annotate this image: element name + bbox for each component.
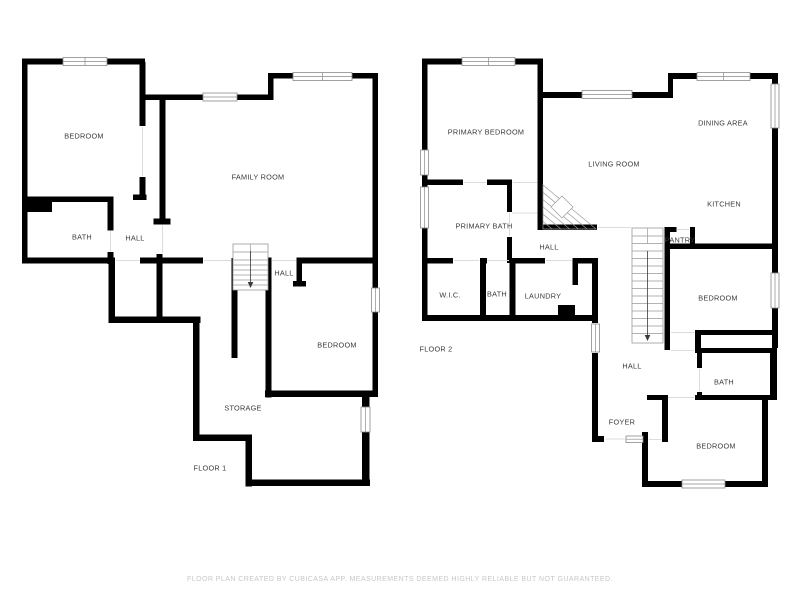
- wall-segment: [422, 180, 463, 186]
- wall-segment: [140, 258, 203, 264]
- room-label-family-room: FAMILY ROOM: [232, 173, 285, 182]
- window: [771, 273, 779, 308]
- wall-segment: [246, 435, 253, 487]
- wall-segment: [109, 258, 116, 323]
- room-label-dining-area: DINING AREA: [698, 119, 748, 128]
- wall-segment: [193, 435, 252, 442]
- wall-segment: [762, 400, 768, 487]
- window: [293, 73, 352, 81]
- wall-segment: [268, 73, 293, 79]
- window: [361, 407, 370, 432]
- wall-segment: [297, 258, 379, 264]
- room-label-hall-upper: HALL: [539, 243, 558, 252]
- room-label-bath-small: BATH: [487, 290, 507, 299]
- footer-disclaimer: FLOOR PLAN CREATED BY CUBICASA APP. MEAS…: [187, 576, 613, 583]
- wall-segment: [592, 436, 604, 442]
- room-label-living-room: LIVING ROOM: [588, 160, 639, 169]
- wall-segment: [133, 195, 147, 201]
- floor2-room-labels: PRIMARY BEDROOM LIVING ROOM DINING AREA …: [420, 119, 748, 451]
- wall-segment: [695, 395, 775, 400]
- room-label-kitchen: KITCHEN: [707, 200, 741, 209]
- room-label-storage: STORAGE: [224, 404, 261, 413]
- wall-segment: [592, 353, 598, 440]
- room-label-primary-bedroom: PRIMARY BEDROOM: [448, 128, 524, 137]
- wall-segment: [140, 62, 146, 126]
- wall-segment: [108, 197, 114, 231]
- window: [421, 150, 429, 175]
- wall-segment: [770, 348, 777, 400]
- floor1-room-labels: BEDROOM FAMILY ROOM BATH HALL HALL BEDRO…: [64, 132, 356, 473]
- fireplace-fixture-block: [22, 197, 52, 212]
- wall-segment: [697, 353, 702, 368]
- room-label-hall-c: HALL: [274, 269, 293, 278]
- wall-segment: [297, 263, 303, 284]
- room-label-pantry: PANTRY: [665, 236, 695, 245]
- room-label-bedroom-nw: BEDROOM: [64, 132, 103, 141]
- room-label-foyer: FOYER: [609, 418, 635, 427]
- floor1-plan: BEDROOM FAMILY ROOM BATH HALL HALL BEDRO…: [22, 58, 380, 487]
- wall-segment: [592, 258, 598, 323]
- floor-plan-canvas: BEDROOM FAMILY ROOM BATH HALL HALL BEDRO…: [0, 0, 800, 600]
- wall-segment: [265, 391, 378, 398]
- room-label-hall-w: HALL: [125, 234, 144, 243]
- wall-segment: [507, 183, 512, 212]
- floor1-walls: [22, 59, 378, 487]
- wall-segment: [538, 60, 544, 230]
- room-label-bedroom-se: BEDROOM: [317, 341, 356, 350]
- room-label-laundry: LAUNDRY: [525, 292, 562, 301]
- floor2-title: FLOOR 2: [420, 345, 453, 354]
- wall-segment: [695, 330, 775, 335]
- floor2-winder-stairs: [543, 185, 596, 229]
- room-label-hall-lower: HALL: [622, 362, 641, 371]
- window: [682, 480, 725, 488]
- floor2-plan: PRIMARY BEDROOM LIVING ROOM DINING AREA …: [420, 58, 779, 489]
- window: [462, 58, 515, 66]
- wall-segment: [695, 330, 701, 353]
- window: [771, 84, 779, 128]
- entry-door: [626, 436, 643, 443]
- wall-segment: [293, 281, 306, 287]
- room-label-wic: W.I.C.: [439, 291, 460, 300]
- window: [421, 187, 429, 228]
- room-label-bath-lower: BATH: [714, 378, 734, 387]
- window: [697, 73, 750, 81]
- wall-segment: [510, 258, 516, 315]
- room-label-bedroom-se: BEDROOM: [696, 442, 735, 451]
- window: [203, 93, 237, 101]
- floor2-stairs: [632, 228, 663, 343]
- wall-segment: [573, 258, 579, 285]
- window: [582, 91, 632, 99]
- wall-segment: [246, 480, 371, 487]
- wall-segment: [109, 317, 201, 324]
- floorplan-page: BEDROOM FAMILY ROOM BATH HALL HALL BEDRO…: [0, 0, 800, 600]
- wall-segment: [193, 317, 200, 440]
- wall-segment: [154, 219, 171, 225]
- wall-segment: [480, 258, 486, 315]
- wall-segment: [373, 73, 379, 397]
- wall-segment: [668, 73, 697, 79]
- wall-segment: [22, 258, 115, 264]
- room-label-bath: BATH: [72, 233, 92, 242]
- wall-segment: [237, 95, 268, 101]
- wall-segment: [22, 59, 28, 264]
- floor1-title: FLOOR 1: [194, 464, 227, 473]
- wall-segment: [160, 95, 166, 225]
- window: [63, 58, 107, 66]
- room-label-primary-bath: PRIMARY BATH: [456, 222, 513, 231]
- wall-segment: [157, 254, 163, 320]
- room-label-bedroom-mid: BEDROOM: [698, 294, 737, 303]
- wall-segment: [422, 258, 453, 264]
- window: [592, 324, 600, 352]
- floor1-stairs: [233, 244, 268, 290]
- water-heater-fixture-block: [558, 305, 575, 317]
- wall-segment: [695, 348, 775, 353]
- wall-segment: [662, 395, 668, 442]
- window: [372, 288, 380, 312]
- wall-segment: [665, 227, 677, 232]
- wall-segment: [642, 443, 648, 487]
- wall-segment: [145, 95, 203, 101]
